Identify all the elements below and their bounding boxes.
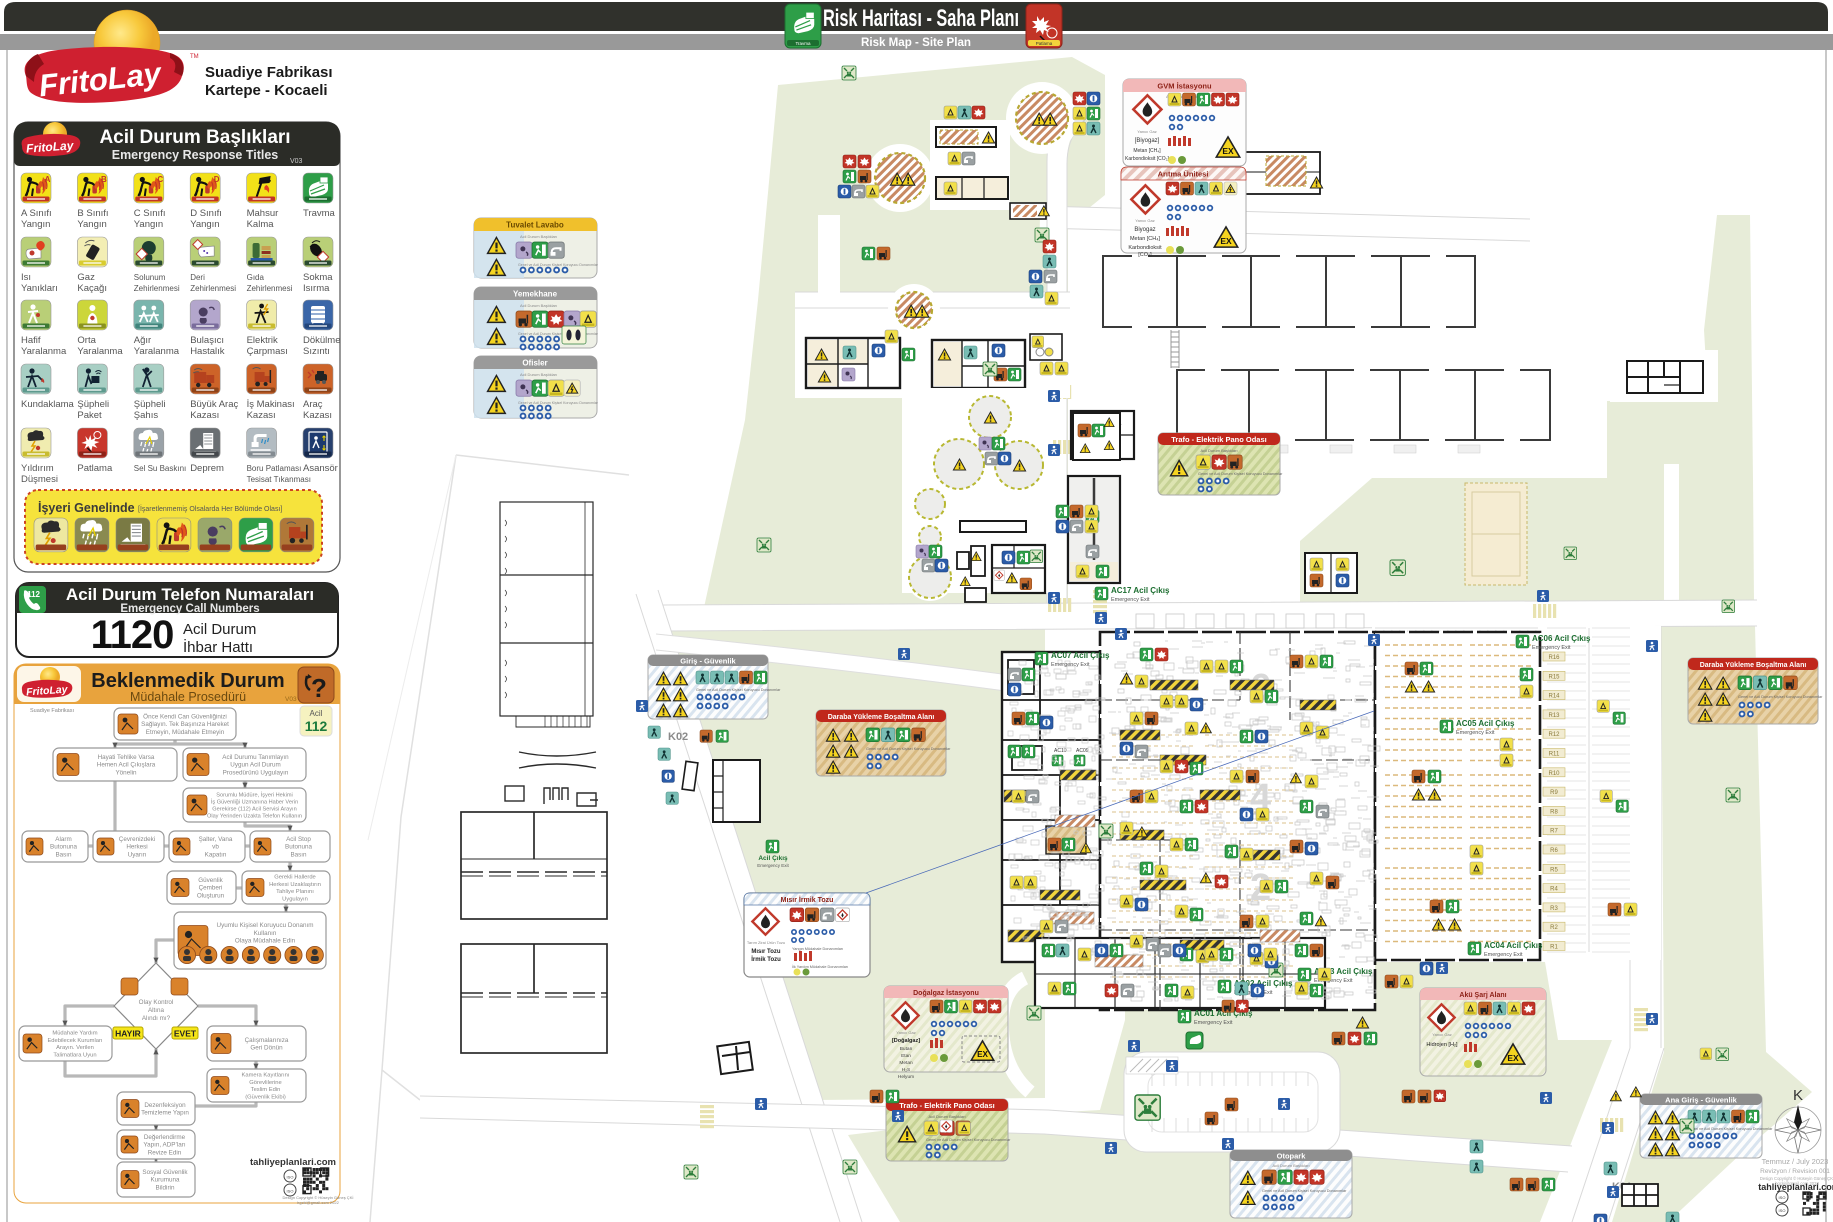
svg-text:Karbondioksit [CO₂]: Karbondioksit [CO₂] [1125,156,1170,162]
svg-text:Çarpması: Çarpması [247,346,288,357]
svg-text:Revize Edin: Revize Edin [148,1150,182,1157]
svg-text:Solunum: Solunum [134,273,166,282]
svg-text:Basın: Basın [55,852,72,859]
svg-text:Metan: Metan [899,1060,913,1066]
svg-text:R7: R7 [1550,829,1558,835]
svg-text:tahliyeplanlari.com: tahliyeplanlari.com [1758,1182,1833,1192]
svg-text:R2: R2 [1550,925,1558,931]
svg-text:Emergency Exit: Emergency Exit [757,863,789,868]
svg-text:Risk Map - Site Plan: Risk Map - Site Plan [861,35,971,49]
svg-text:AC07 Acil Çıkış: AC07 Acil Çıkış [1051,651,1110,660]
svg-text:Acil Durumu Tanımlayın: Acil Durumu Tanımlayın [222,754,289,761]
svg-text:Düşmesi: Düşmesi [21,474,58,485]
svg-text:Hidrojen [H₂]: Hidrojen [H₂] [1426,1042,1458,1048]
svg-text:Kurumuna: Kurumuna [150,1177,180,1184]
svg-text:Herkesi Uzaklaştırın: Herkesi Uzaklaştırın [269,882,321,888]
svg-text:Yaralanma: Yaralanma [134,346,180,357]
svg-text:Genel ve Acil Durum Kişisel Ko: Genel ve Acil Durum Kişisel Koruyucu Don… [866,747,951,751]
svg-text:R13: R13 [1548,713,1560,719]
svg-text:R11: R11 [1549,752,1560,758]
svg-text:Acil Durum Başlıkları: Acil Durum Başlıkları [520,234,557,239]
svg-text:Karbondioksit: Karbondioksit [1128,245,1162,251]
svg-text:Şüpheli: Şüpheli [77,399,109,410]
svg-text:ISO: ISO [287,1189,294,1194]
svg-text:?: ? [311,673,327,703]
svg-text:Beklenmedik Durum: Beklenmedik Durum [91,670,284,692]
svg-text:Acil Durum Telefon Numaraları: Acil Durum Telefon Numaraları [66,585,314,604]
svg-text:Daraba Yükleme Boşaltma Alanı: Daraba Yükleme Boşaltma Alanı [1700,662,1807,669]
svg-text:K: K [1793,1087,1803,1104]
svg-text:Acil Durum Başlıkları: Acil Durum Başlıkları [1200,448,1237,453]
svg-text:Arıtma Ünitesi: Arıtma Ünitesi [1158,170,1209,179]
svg-text:R6: R6 [1550,848,1558,854]
svg-text:Önce Kendi Can Güvenliğinizi: Önce Kendi Can Güvenliğinizi [143,712,227,720]
svg-text:AC04 Acil Çıkış: AC04 Acil Çıkış [1484,941,1543,950]
svg-text:Ofisler: Ofisler [522,359,547,368]
svg-text:Yaralanma: Yaralanma [21,346,67,357]
svg-text:Gıda: Gıda [247,273,265,282]
svg-text:Yanıcı Gaz: Yanıcı Gaz [896,1030,916,1035]
svg-text:Biyogaz: Biyogaz [1134,227,1155,233]
svg-text:Yanıkları: Yanıkları [21,283,58,294]
svg-text:Çemberi: Çemberi [199,885,223,892]
svg-text:Hemen Acil Çıkışlara: Hemen Acil Çıkışlara [97,762,156,769]
svg-text:Talimatlara Uyun: Talimatlara Uyun [53,1052,96,1058]
svg-text:R4: R4 [1550,887,1558,893]
svg-text:Zehirlenmesi: Zehirlenmesi [190,284,236,293]
svg-text:Yangın: Yangın [134,219,163,230]
svg-text:A: A [45,175,51,184]
svg-text:Genel ve Acil Durum Kişisel Ko: Genel ve Acil Durum Kişisel Koruyucu Don… [518,263,599,267]
svg-text:Emergency Exit: Emergency Exit [1194,1020,1233,1026]
svg-text:Mısır Tozu: Mısır Tozu [751,949,781,955]
svg-text:Genel ve Acil Durum Kişisel Ko: Genel ve Acil Durum Kişisel Koruyucu Don… [1688,1127,1773,1131]
svg-text:Tesisat Tıkanması: Tesisat Tıkanması [247,475,311,484]
svg-text:Etmeyin, Müdahale Etmeyin: Etmeyin, Müdahale Etmeyin [146,729,225,736]
svg-text:Suadiye Fabrikası: Suadiye Fabrikası [30,708,74,714]
svg-text:Müdahale Prosedürü: Müdahale Prosedürü [130,690,246,704]
svg-text:Acil Durum Başlıkları: Acil Durum Başlıkları [520,303,557,308]
svg-text:Kaçağı: Kaçağı [77,283,107,294]
svg-text:GVM İstasyonu: GVM İstasyonu [1157,82,1212,91]
svg-text:Altına: Altına [148,1007,165,1014]
svg-text:Kazası: Kazası [303,410,332,421]
svg-text:Otopark: Otopark [1277,1152,1307,1161]
svg-text:Araç: Araç [303,399,323,410]
svg-text:İşyeri Genelinde: İşyeri Genelinde [38,500,135,515]
svg-text:Kartepe - Kocaeli: Kartepe - Kocaeli [205,82,328,99]
svg-text:Sağlayın. Tek Başınıza Hareket: Sağlayın. Tek Başınıza Hareket [141,721,229,728]
svg-text:Isı: Isı [21,272,31,283]
svg-text:HAYIR: HAYIR [115,1029,141,1039]
svg-text:Doğalgaz İstasyonu: Doğalgaz İstasyonu [913,989,979,997]
svg-text:Risk Haritası - Saha Planı: Risk Haritası - Saha Planı [823,5,1019,32]
svg-text:Teslim Edin: Teslim Edin [251,1087,281,1093]
svg-text:Yangın: Yangın [77,219,106,230]
svg-text:Mısır İrmik Tozu: Mısır İrmik Tozu [781,896,834,904]
svg-text:Acil Durum Başlıkları: Acil Durum Başlıkları [928,1114,965,1119]
svg-text:Zehirlenmesi: Zehirlenmesi [247,284,293,293]
svg-text:Acil Çıkış: Acil Çıkış [758,855,788,862]
svg-text:Genel ve Acil Durum Kişisel Ko: Genel ve Acil Durum Kişisel Koruyucu Don… [1198,472,1283,476]
svg-text:Sosyal Güvenlik: Sosyal Güvenlik [142,1169,188,1176]
svg-text:Gerekirse (112) Acil Servisi A: Gerekirse (112) Acil Servisi Arayın [212,807,296,813]
svg-text:(Güvenlik Ekibi): (Güvenlik Ekibi) [245,1094,286,1100]
svg-text:Oluşturun: Oluşturun [197,893,225,900]
svg-text:V03: V03 [290,158,303,165]
svg-text:Değerlendirme: Değerlendirme [144,1134,186,1141]
svg-text:[İşaretlenmemiş Olsalarda Her: [İşaretlenmemiş Olsalarda Her Bölümde Ol… [138,504,282,513]
svg-text:Yangın Müdahale Donanımları: Yangın Müdahale Donanımları [792,947,843,951]
svg-text:EVET: EVET [174,1029,197,1039]
svg-text:Şahıs: Şahıs [134,410,159,421]
svg-text:Alarm: Alarm [55,836,71,843]
svg-text:Butonuna: Butonuna [285,844,312,851]
svg-text:Acil Durum Başlıkları: Acil Durum Başlıkları [520,372,557,377]
svg-text:Sokma: Sokma [303,272,333,283]
svg-text:R5: R5 [1550,867,1558,873]
svg-text:V03: V03 [285,696,297,703]
svg-text:ISO: ISO [1779,1208,1786,1213]
svg-text:Trafo - Elektrik Pano Odası: Trafo - Elektrik Pano Odası [1171,435,1266,444]
svg-text:Olay Kontrol: Olay Kontrol [139,999,174,1006]
svg-text:Arayın. Verilen: Arayın. Verilen [56,1045,94,1051]
svg-text:Temizleme Yapın: Temizleme Yapın [141,1110,189,1117]
svg-text:Genel ve Acil Durum Kişisel Ko: Genel ve Acil Durum Kişisel Koruyucu Don… [696,688,781,692]
svg-text:Temmuz / July 2023: Temmuz / July 2023 [1762,1157,1829,1166]
svg-text:Geri Dönün: Geri Dönün [250,1045,283,1052]
svg-text:Hayati Tehlike Varsa: Hayati Tehlike Varsa [98,754,155,761]
svg-text:Giriş - Güvenlik: Giriş - Güvenlik [680,657,736,666]
svg-text:Şalter, Vana: Şalter, Vana [199,836,233,843]
svg-text:Güvenlik: Güvenlik [198,877,223,884]
svg-text:ISO: ISO [287,1175,294,1180]
svg-text:Suadiye Fabrikası: Suadiye Fabrikası [205,64,333,81]
svg-text:Acil Durum Başlıkları: Acil Durum Başlıkları [1272,1163,1309,1168]
svg-text:İş Makinası: İş Makinası [247,399,295,410]
svg-text:Olaya Müdahale Edin: Olaya Müdahale Edin [235,938,296,945]
svg-text:Herkesi: Herkesi [126,844,147,851]
svg-text:[CO₂]: [CO₂] [1138,252,1152,258]
svg-text:Ana Giriş - Güvenlik: Ana Giriş - Güvenlik [1665,1096,1738,1105]
svg-text:Acil Durum: Acil Durum [183,621,256,638]
svg-text:Kalma: Kalma [247,219,275,230]
svg-text:İlk Yardım Müdahale Donanımlar: İlk Yardım Müdahale Donanımları [792,964,848,969]
svg-text:Tarım Zirai Ürün Tozu: Tarım Zirai Ürün Tozu [747,940,785,945]
svg-text:Revizyon / Revision 001: Revizyon / Revision 001 [1760,1168,1830,1175]
svg-text:ISO: ISO [1779,1195,1786,1200]
svg-text:Acil Stop: Acil Stop [286,836,311,843]
svg-text:Dökülme: Dökülme [303,335,341,346]
svg-text:Metan [CH₄]: Metan [CH₄] [1130,236,1161,242]
svg-text:Uyarın: Uyarın [128,852,147,859]
svg-text:D Sınıfı: D Sınıfı [190,208,222,219]
svg-text:Prosedürünü Uygulayın: Prosedürünü Uygulayın [223,770,289,777]
svg-text:Asansör: Asansör [303,463,338,474]
svg-text:Yangın: Yangın [21,219,50,230]
svg-text:AC17 Acil Çıkış: AC17 Acil Çıkış [1111,586,1170,595]
svg-text:Büyük Araç: Büyük Araç [190,399,238,410]
svg-text:Acil Durum Başlıkları: Acil Durum Başlıkları [99,127,290,148]
svg-text:Trafo - Elektrik Pano Odası: Trafo - Elektrik Pano Odası [899,1101,994,1110]
svg-text:Görevlilerine: Görevlilerine [249,1080,282,1086]
svg-text:112: 112 [27,590,40,599]
svg-text:Yaralanma: Yaralanma [77,346,123,357]
svg-text:C Sınıfı: C Sınıfı [134,208,166,219]
svg-text:Butan: Butan [900,1046,913,1052]
svg-text:[Biyogaz]: [Biyogaz] [1135,138,1160,144]
svg-text:Deprem: Deprem [190,463,224,474]
svg-text:Paket: Paket [77,410,102,421]
svg-text:Yangın: Yangın [190,219,219,230]
svg-text:Metan [CH₄]: Metan [CH₄] [1133,148,1161,154]
svg-text:Travma: Travma [795,41,811,46]
svg-text:Patlama: Patlama [1036,41,1053,46]
svg-text:Edebilecek Kurumları: Edebilecek Kurumları [47,1038,102,1044]
svg-text:Emergency Exit: Emergency Exit [1111,597,1150,603]
svg-text:Kazası: Kazası [247,410,276,421]
svg-text:Yanıcı Gaz: Yanıcı Gaz [1432,1032,1452,1037]
svg-text:Alındı mı?: Alındı mı? [142,1015,171,1022]
svg-text:Sel Su Baskını: Sel Su Baskını [134,464,186,473]
svg-text:[Doğalgaz]: [Doğalgaz] [892,1038,920,1044]
svg-text:R12: R12 [1548,732,1560,738]
svg-text:Genel ve Acil Durum Kişisel Ko: Genel ve Acil Durum Kişisel Koruyucu Don… [926,1138,1011,1142]
svg-text:Emergency Exit: Emergency Exit [1456,730,1495,736]
svg-text:Akü Şarj Alanı: Akü Şarj Alanı [1459,992,1506,999]
svg-text:Gerekli Hallerde: Gerekli Hallerde [274,875,316,881]
svg-text:Genel ve Acil Durum Kişisel Ko: Genel ve Acil Durum Kişisel Koruyucu Don… [1262,1189,1347,1193]
svg-text:R15: R15 [1548,674,1560,680]
svg-text:Patlama: Patlama [77,463,113,474]
svg-text:Hafif: Hafif [21,335,41,346]
svg-text:Uyumlu Kişisel Koruyucu Donanı: Uyumlu Kişisel Koruyucu Donanım [217,922,314,929]
svg-text:Kundaklama: Kundaklama [21,399,75,410]
svg-text:Çalışmalarınıza: Çalışmalarınıza [245,1037,289,1044]
svg-text:Isırma: Isırma [303,283,330,294]
svg-text:Şüpheli: Şüpheli [134,399,166,410]
svg-text:AC09: AC09 [1076,748,1089,754]
svg-text:Sızıntı: Sızıntı [303,346,330,357]
svg-text:AC05 Acil Çıkış: AC05 Acil Çıkış [1456,719,1515,728]
svg-text:Travma: Travma [303,208,336,219]
svg-text:tahliyeplanlari.com: tahliyeplanlari.com [250,1157,336,1168]
svg-text:Genel ve Acil Durum Kişisel Ko: Genel ve Acil Durum Kişisel Koruyucu Don… [518,401,599,405]
svg-text:Yönelin: Yönelin [115,770,137,777]
svg-text:Kazası: Kazası [190,410,219,421]
svg-text:Etan: Etan [901,1053,911,1059]
svg-text:K02: K02 [668,731,688,743]
svg-text:Bulaşıcı: Bulaşıcı [190,335,224,346]
svg-text:AC06 Acil Çıkış: AC06 Acil Çıkış [1532,634,1591,643]
svg-text:Kullanın: Kullanın [254,930,277,937]
svg-text:Butonuna: Butonuna [50,844,77,851]
svg-text:112: 112 [305,718,328,734]
svg-text:Gaz: Gaz [77,272,95,283]
svg-text:Boru Patlaması: Boru Patlaması [247,464,302,473]
svg-text:Elektrik: Elektrik [247,335,278,346]
svg-text:Sorumlu Müdüre, İşyeri Hekimi: Sorumlu Müdüre, İşyeri Hekimi [216,791,292,798]
svg-text:vb: vb [212,844,219,851]
svg-text:Acil: Acil [310,709,323,718]
svg-text:Bildirin: Bildirin [156,1185,175,1192]
svg-text:Uygulayın: Uygulayın [282,896,308,902]
svg-text:Genel ve Acil Durum Kişisel Ko: Genel ve Acil Durum Kişisel Koruyucu Don… [518,332,599,336]
svg-text:Helyum: Helyum [898,1074,914,1080]
svg-text:Orta: Orta [77,335,96,346]
svg-text:Yanıcı Gaz: Yanıcı Gaz [1135,218,1155,223]
svg-text:Kamera Kayıtlarını: Kamera Kayıtlarını [241,1073,289,1079]
svg-text:Ağır: Ağır [134,335,151,346]
svg-text:Yanıcı Gaz: Yanıcı Gaz [1137,129,1157,134]
svg-text:H₂S: H₂S [902,1067,911,1073]
svg-text:Yemekhane: Yemekhane [513,290,558,299]
svg-text:Yapın, ADP’ları: Yapın, ADP’ları [143,1142,185,1149]
svg-text:B Sınıfı: B Sınıfı [77,208,108,219]
svg-text:R10: R10 [1548,771,1560,777]
svg-text:A Sınıfı: A Sınıfı [21,208,52,219]
svg-text:Müdahale Yardım: Müdahale Yardım [52,1031,97,1037]
svg-text:Deri: Deri [190,273,205,282]
svg-text:1120: 1120 [91,613,174,657]
svg-text:hgcki@gmail.com 2022: hgcki@gmail.com 2022 [297,1200,339,1205]
svg-text:Emergency Exit: Emergency Exit [1051,662,1090,668]
svg-text:Yıldırım: Yıldırım [21,463,54,474]
svg-text:Hastalık: Hastalık [190,346,225,357]
svg-text:R8: R8 [1550,809,1558,815]
svg-text:R1: R1 [1550,945,1558,951]
svg-text:Çevrenizdeki: Çevrenizdeki [119,836,155,843]
svg-text:İrmik Tozu: İrmik Tozu [751,956,781,963]
svg-text:Mahsur: Mahsur [247,208,279,219]
svg-text:İhbar Hattı: İhbar Hattı [183,638,253,656]
svg-text:R16: R16 [1548,655,1560,661]
svg-text:D: D [214,175,220,184]
svg-text:Zehirlenmesi: Zehirlenmesi [134,284,180,293]
svg-text:Dezenfeksiyon: Dezenfeksiyon [144,1102,186,1109]
svg-text:Tuvalet Lavabo: Tuvalet Lavabo [506,221,564,230]
svg-text:Emergency Response Titles: Emergency Response Titles [112,148,279,162]
svg-text:İş Güvenliği Uzmanına Haber Ve: İş Güvenliği Uzmanına Haber Verin [211,798,298,805]
svg-text:Emergency Exit: Emergency Exit [1484,952,1523,958]
svg-text:R14: R14 [1548,694,1560,700]
svg-text:TM: TM [190,54,199,60]
svg-text:Daraba Yükleme Boşaltma Alanı: Daraba Yükleme Boşaltma Alanı [828,714,935,721]
svg-text:Basın: Basın [290,852,307,859]
svg-text:Uygun Acil Durum: Uygun Acil Durum [230,762,280,769]
svg-text:Tahliye Planını: Tahliye Planını [276,889,314,895]
svg-text:R9: R9 [1550,790,1558,796]
svg-text:C: C [157,175,163,184]
svg-text:Olay Yerinden Uzakta Telefon K: Olay Yerinden Uzakta Telefon Kullanın [207,814,302,820]
svg-text:Genel ve Acil Durum Kişisel Ko: Genel ve Acil Durum Kişisel Koruyucu Don… [1738,695,1823,699]
svg-text:Kapatın: Kapatın [205,852,227,859]
svg-text:B: B [101,175,107,184]
svg-text:R3: R3 [1550,906,1558,912]
svg-text:Emergency Exit: Emergency Exit [1532,645,1571,651]
